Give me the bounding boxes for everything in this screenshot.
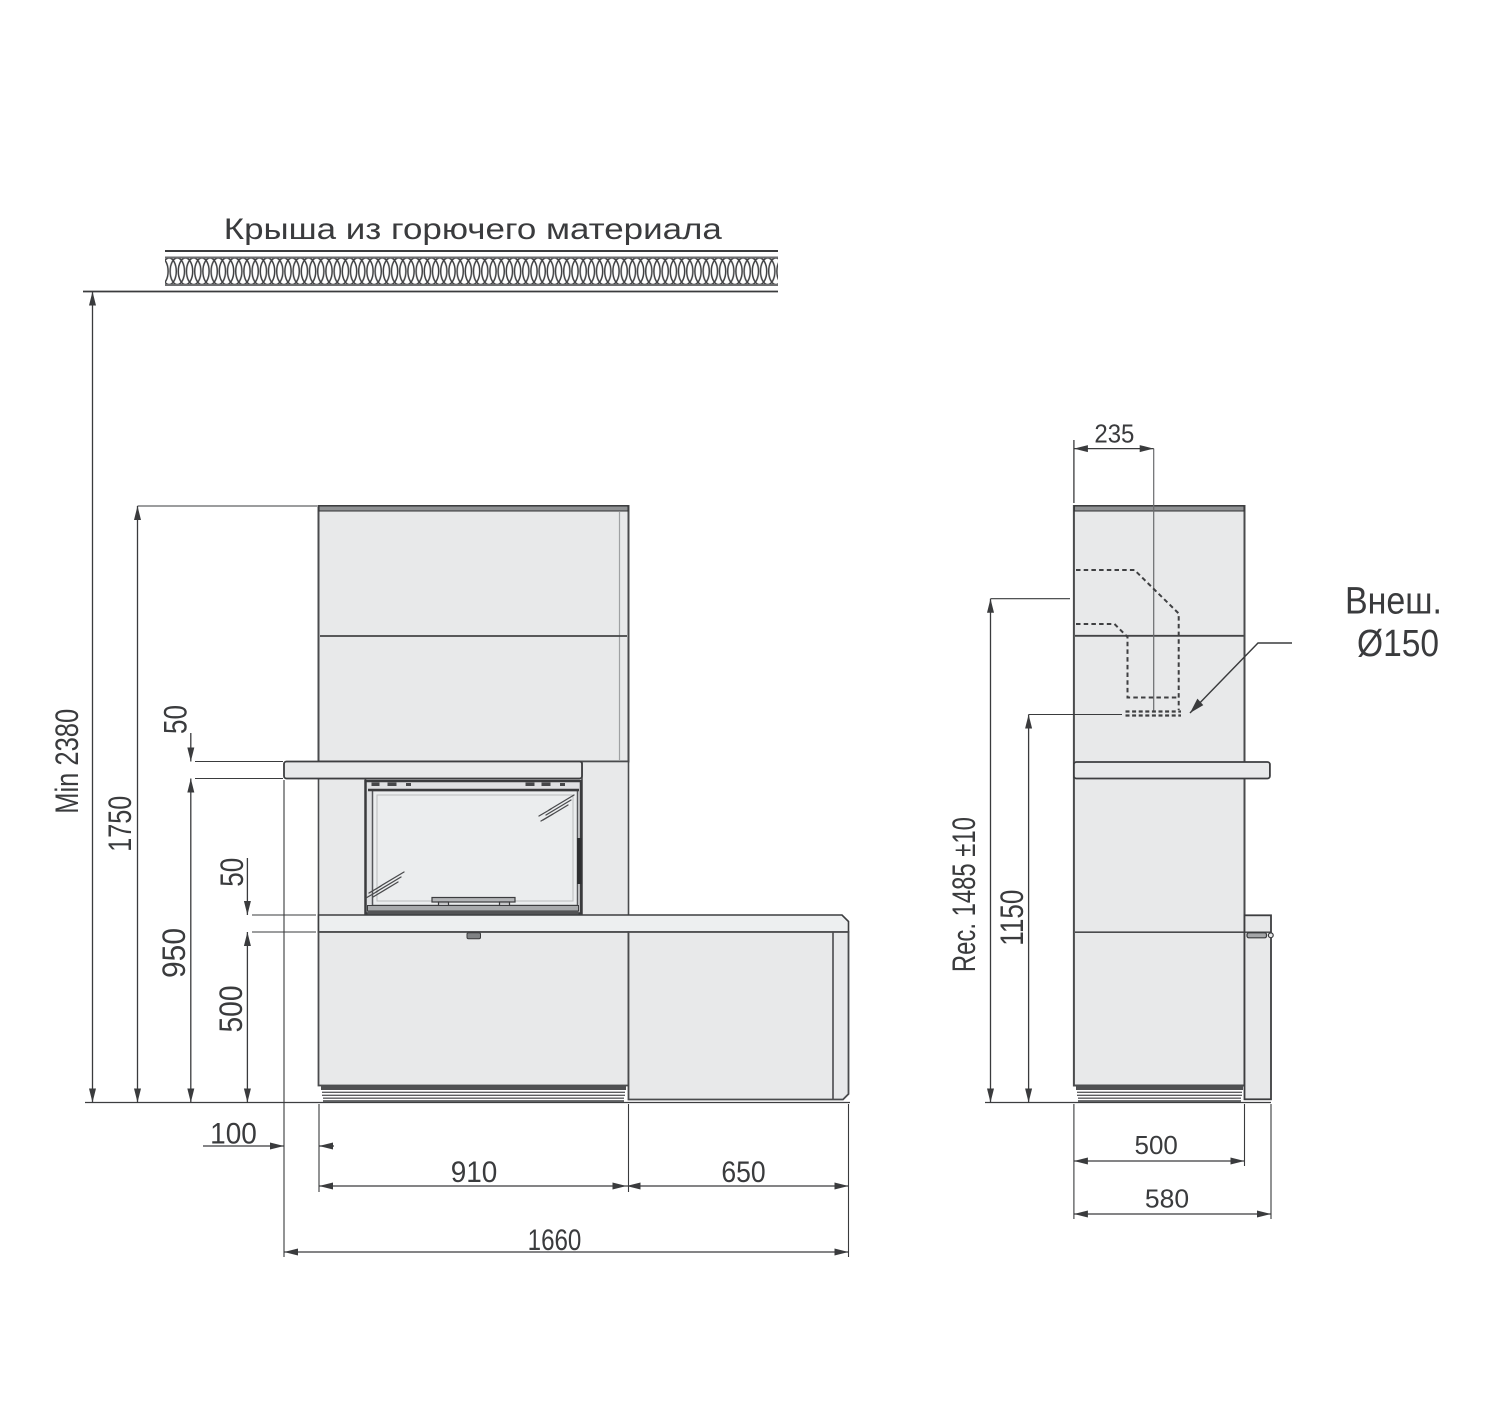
svg-text:650: 650 <box>721 1156 765 1189</box>
svg-text:580: 580 <box>1145 1184 1189 1214</box>
svg-text:50: 50 <box>158 705 194 734</box>
svg-text:Крыша из горючего материала: Крыша из горючего материала <box>224 213 722 246</box>
svg-text:100: 100 <box>210 1118 257 1151</box>
svg-text:1750: 1750 <box>102 796 138 852</box>
svg-text:50: 50 <box>214 858 250 887</box>
svg-text:1150: 1150 <box>994 890 1030 946</box>
svg-text:1660: 1660 <box>528 1224 582 1257</box>
svg-text:910: 910 <box>451 1156 498 1189</box>
svg-text:950: 950 <box>156 928 192 978</box>
svg-text:235: 235 <box>1094 419 1134 449</box>
svg-text:Внеш.: Внеш. <box>1345 581 1442 623</box>
svg-text:Ø150: Ø150 <box>1357 623 1439 665</box>
svg-text:500: 500 <box>213 986 249 1033</box>
svg-text:500: 500 <box>1135 1130 1178 1160</box>
svg-text:Rec. 1485 ±10: Rec. 1485 ±10 <box>946 817 982 972</box>
svg-text:Min 2380: Min 2380 <box>49 709 85 814</box>
